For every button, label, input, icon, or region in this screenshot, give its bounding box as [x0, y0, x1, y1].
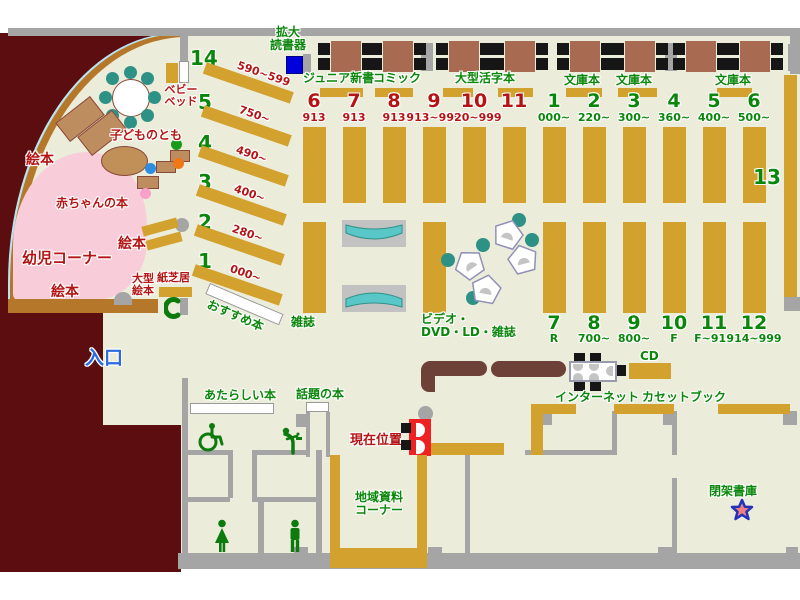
section-number: 3	[614, 92, 654, 111]
reading-table	[740, 41, 770, 72]
pillar-shelf-13	[784, 297, 800, 311]
section-number: 11	[494, 92, 534, 111]
chair	[612, 43, 624, 55]
section-number: 12	[734, 314, 774, 333]
wall-stack-v	[672, 478, 677, 557]
section-number: 9	[614, 314, 654, 333]
outside-area-bottomleft	[103, 425, 181, 572]
cd-shelf	[629, 363, 671, 379]
children-bottom-wall	[8, 299, 158, 313]
reading-table	[686, 41, 716, 72]
baby-bed-shelf	[166, 63, 178, 83]
monitor	[573, 373, 583, 380]
shelf-label-bunko-3: 文庫本	[715, 74, 751, 87]
wheelchair-icon	[194, 421, 226, 453]
wall-topic-v1	[306, 412, 310, 457]
children-cushion-orange	[173, 158, 184, 169]
new-books-label: あたらしい本	[204, 389, 276, 402]
chair	[771, 43, 783, 55]
section-number: 6	[734, 92, 774, 111]
l-shelf-horizontal	[531, 404, 576, 414]
shelf-column	[383, 127, 406, 203]
reading-table	[383, 41, 413, 72]
shelf-label-bunko-2: 文庫本	[616, 74, 652, 87]
wall-bottom	[178, 553, 800, 569]
cd-label: CD	[640, 350, 659, 363]
wall-top	[8, 28, 800, 36]
akachan-label: 赤ちゃんの本	[56, 197, 128, 210]
shelf-column	[623, 127, 646, 203]
chair	[656, 58, 668, 70]
children-chair	[141, 72, 154, 85]
chair	[727, 58, 739, 70]
magazine-rack-top	[342, 220, 406, 247]
children-rug-oval	[101, 146, 148, 176]
section-number: 5	[694, 92, 734, 111]
cassette-label: カセットブック	[642, 391, 726, 404]
section-number: 1	[534, 92, 574, 111]
reading-table	[505, 41, 535, 72]
chair	[536, 58, 548, 70]
section-number-13: 13	[752, 168, 782, 187]
study-carrels	[438, 208, 548, 318]
chair	[771, 58, 783, 70]
children-chair	[106, 72, 119, 85]
ehon-label-mid: 絵本	[118, 233, 146, 253]
children-chair	[99, 91, 112, 104]
shelf-column	[663, 127, 686, 203]
monitor	[606, 366, 613, 376]
section-number: 11	[694, 314, 734, 333]
section-range: 914~999	[726, 333, 782, 345]
wall-toilet-left	[182, 378, 188, 557]
section-range: 920~999	[446, 112, 502, 124]
marker-block	[401, 423, 411, 433]
baby-bed	[179, 61, 189, 83]
magazine-rack-curve	[342, 285, 406, 312]
local-corner-label: 地域資料コーナー	[343, 491, 415, 517]
large-picture-book-label: 大型絵本	[128, 273, 158, 297]
chair	[370, 43, 382, 55]
chair	[673, 43, 685, 55]
chair	[492, 43, 504, 55]
library-floor-map: 拡大読書器 ジュニア新書 コミック 大型活字本 文庫本 文庫本 文庫本 6 91…	[0, 0, 800, 600]
pillar-bottom-4	[786, 547, 798, 557]
section-range: 500~	[726, 112, 782, 124]
shelf-column	[703, 127, 726, 203]
right-shelf	[718, 404, 790, 414]
video-label: ビデオ・DVD・LD・雑誌	[421, 313, 516, 339]
chair	[557, 58, 569, 70]
chair	[370, 58, 382, 70]
cassette-shelf	[614, 404, 674, 414]
section-number: 7	[334, 92, 374, 111]
entrance-label: 入口	[85, 343, 123, 370]
shelf-column	[623, 222, 646, 313]
chair	[436, 43, 448, 55]
shelf-label-junior: ジュニア新書	[303, 72, 374, 85]
chair	[656, 43, 668, 55]
chair	[673, 58, 685, 70]
magnifier-label: 拡大読書器	[266, 26, 310, 52]
pillar-tables-3	[788, 44, 797, 71]
shelf-column	[503, 127, 526, 203]
reading-table	[625, 41, 655, 72]
reading-table	[449, 41, 479, 72]
magnifier-device	[286, 56, 303, 74]
magazine-rack-curve	[342, 220, 406, 247]
shelf-column	[583, 222, 606, 313]
baby-bed-label: ベビーベッド	[160, 84, 202, 108]
chair	[727, 43, 739, 55]
topic-books-shelf	[306, 402, 329, 412]
phone-icon	[164, 297, 182, 319]
children-step	[137, 176, 159, 189]
chair	[492, 58, 504, 70]
wall-toilet-right	[316, 450, 322, 557]
reading-table	[331, 41, 361, 72]
wall-av-room-v1	[612, 411, 617, 455]
mens-toilet-icon	[285, 519, 305, 553]
shelf-column	[343, 127, 366, 203]
kodomonotomo-label: 子どものとも	[110, 129, 182, 142]
wall-toilet-h3	[188, 497, 230, 502]
children-cushion-pink	[140, 188, 151, 199]
ehon-label-bottom: 絵本	[51, 281, 79, 301]
wall-toilet-divider	[258, 502, 264, 555]
children-chair	[124, 66, 137, 79]
children-chair	[141, 109, 154, 122]
chair	[480, 43, 492, 55]
chair	[557, 43, 569, 55]
current-position-label: 現在位置	[350, 429, 402, 448]
wall-topic-v2	[326, 412, 330, 457]
monitor	[589, 373, 599, 380]
topic-books-label: 話題の本	[296, 388, 344, 401]
shelf-column	[663, 222, 686, 313]
shelf-column	[703, 222, 726, 313]
closed-stack-star-icon	[729, 497, 755, 523]
section-number: 9	[414, 92, 454, 111]
internet-label: インターネット	[555, 391, 639, 404]
chair	[612, 58, 624, 70]
reading-table	[570, 41, 600, 72]
section-number: 4	[654, 92, 694, 111]
section-number: 10	[654, 314, 694, 333]
shelf-label-bunko-1: 文庫本	[564, 74, 600, 87]
chair	[536, 43, 548, 55]
new-books-shelf	[190, 403, 274, 414]
pillar-bottom-3	[658, 547, 672, 557]
section-number: 8	[574, 314, 614, 333]
shelf-column	[463, 127, 486, 203]
chair	[436, 58, 448, 70]
toddler-corner-label: 幼児コーナー	[22, 247, 112, 268]
children-cushion-blue	[145, 163, 156, 174]
chair	[414, 43, 426, 55]
section-number: 8	[374, 92, 414, 111]
wall-local-right	[465, 450, 470, 557]
kamishibai-shelf	[159, 287, 192, 297]
ehon-label-left: 絵本	[26, 149, 54, 169]
shelf-column	[543, 127, 566, 203]
shelf-column	[583, 127, 606, 203]
section-number: 2	[574, 92, 614, 111]
shelf-label-large-print: 大型活字本	[455, 72, 515, 85]
chair	[480, 58, 492, 70]
marker-block	[401, 440, 411, 450]
shelf-column	[743, 222, 766, 313]
drinking-fountain-icon	[278, 425, 304, 455]
womens-toilet-icon	[211, 519, 233, 553]
kamishibai-label: 紙芝居	[157, 272, 190, 284]
shelf-label-comic: コミック	[373, 72, 421, 85]
shelf-13	[784, 75, 797, 297]
magazine-rack-bottom	[342, 285, 406, 312]
wall-toilet-v2	[252, 450, 257, 498]
chair	[617, 365, 626, 376]
chair	[414, 58, 426, 70]
counter-l-vertical	[421, 361, 435, 392]
shelf-column	[423, 127, 446, 203]
counter-pill	[491, 361, 566, 377]
section-number: 10	[454, 92, 494, 111]
chair	[318, 58, 330, 70]
wall-toilet-v1	[228, 450, 233, 498]
marker-side-shelf	[431, 443, 504, 455]
pillar-bottom-2	[428, 547, 442, 557]
chair	[318, 43, 330, 55]
